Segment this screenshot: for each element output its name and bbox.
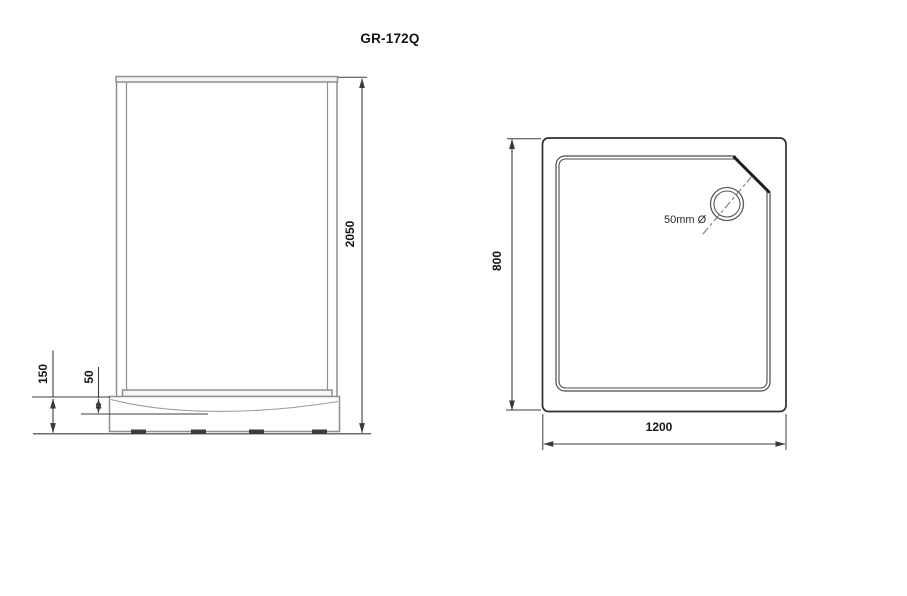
dim-label-overall-height: 2050 xyxy=(343,220,357,247)
tray-foot xyxy=(131,430,146,434)
dim-label-plan-depth: 800 xyxy=(490,251,504,271)
dim-label-base-height: 150 xyxy=(36,364,50,384)
dim-label-tray-depth: 50 xyxy=(82,370,96,384)
tray-foot xyxy=(191,430,206,434)
shower-cabin-technical-drawing: GR-172Q xyxy=(0,0,907,596)
plan-tray-basin-line xyxy=(559,159,767,388)
model-title: GR-172Q xyxy=(360,31,419,46)
tray-foot xyxy=(312,430,327,434)
drawing-canvas: GR-172Q xyxy=(0,0,907,596)
plan-view xyxy=(543,138,787,412)
tray-foot xyxy=(249,430,264,434)
dim-label-plan-width: 1200 xyxy=(646,420,673,434)
drain-diameter-label: 50mm Ø xyxy=(664,214,707,226)
front-bottom-rail xyxy=(123,390,333,397)
front-view xyxy=(110,77,340,432)
front-top-rail xyxy=(116,77,338,83)
